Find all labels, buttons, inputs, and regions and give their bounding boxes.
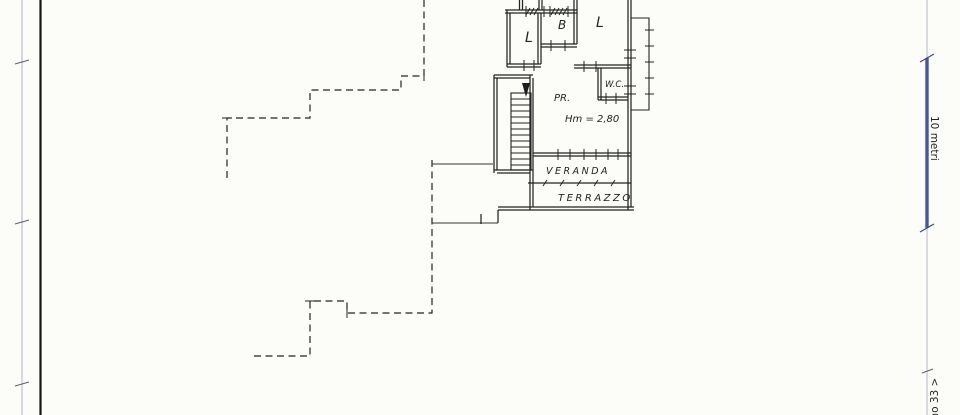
boundary-corner-ticks	[222, 71, 424, 318]
room-label-l-left: L	[525, 30, 533, 46]
room-label-wc: W.C.	[605, 80, 624, 90]
room-label-pr: PR.	[554, 93, 570, 104]
stair-direction-arrow	[522, 83, 530, 97]
property-boundary-dashed	[227, 0, 432, 356]
scale-bar: 10 metri	[920, 54, 940, 232]
height-annotation: Hm = 2,80	[565, 114, 619, 125]
scale-bar-label: 10 metri	[928, 116, 940, 161]
veranda-parapet	[528, 180, 631, 186]
balcony	[631, 18, 654, 110]
room-label-b: B	[558, 18, 566, 32]
building-walls	[481, 0, 634, 224]
cadastral-floor-plan-sheet: 10 metri ano 33 >	[0, 0, 960, 415]
staircase	[511, 93, 531, 170]
floor-plan-drawing: 10 metri ano 33 >	[0, 0, 960, 415]
left-margin-rule	[15, 0, 29, 415]
room-label-l-right: L	[596, 15, 604, 31]
sheet-corner-note: ano 33 >	[929, 378, 941, 415]
connector-lines	[432, 164, 498, 223]
room-label-veranda: VERANDA	[546, 166, 610, 177]
room-label-terrazzo: TERRAZZO	[558, 193, 633, 204]
